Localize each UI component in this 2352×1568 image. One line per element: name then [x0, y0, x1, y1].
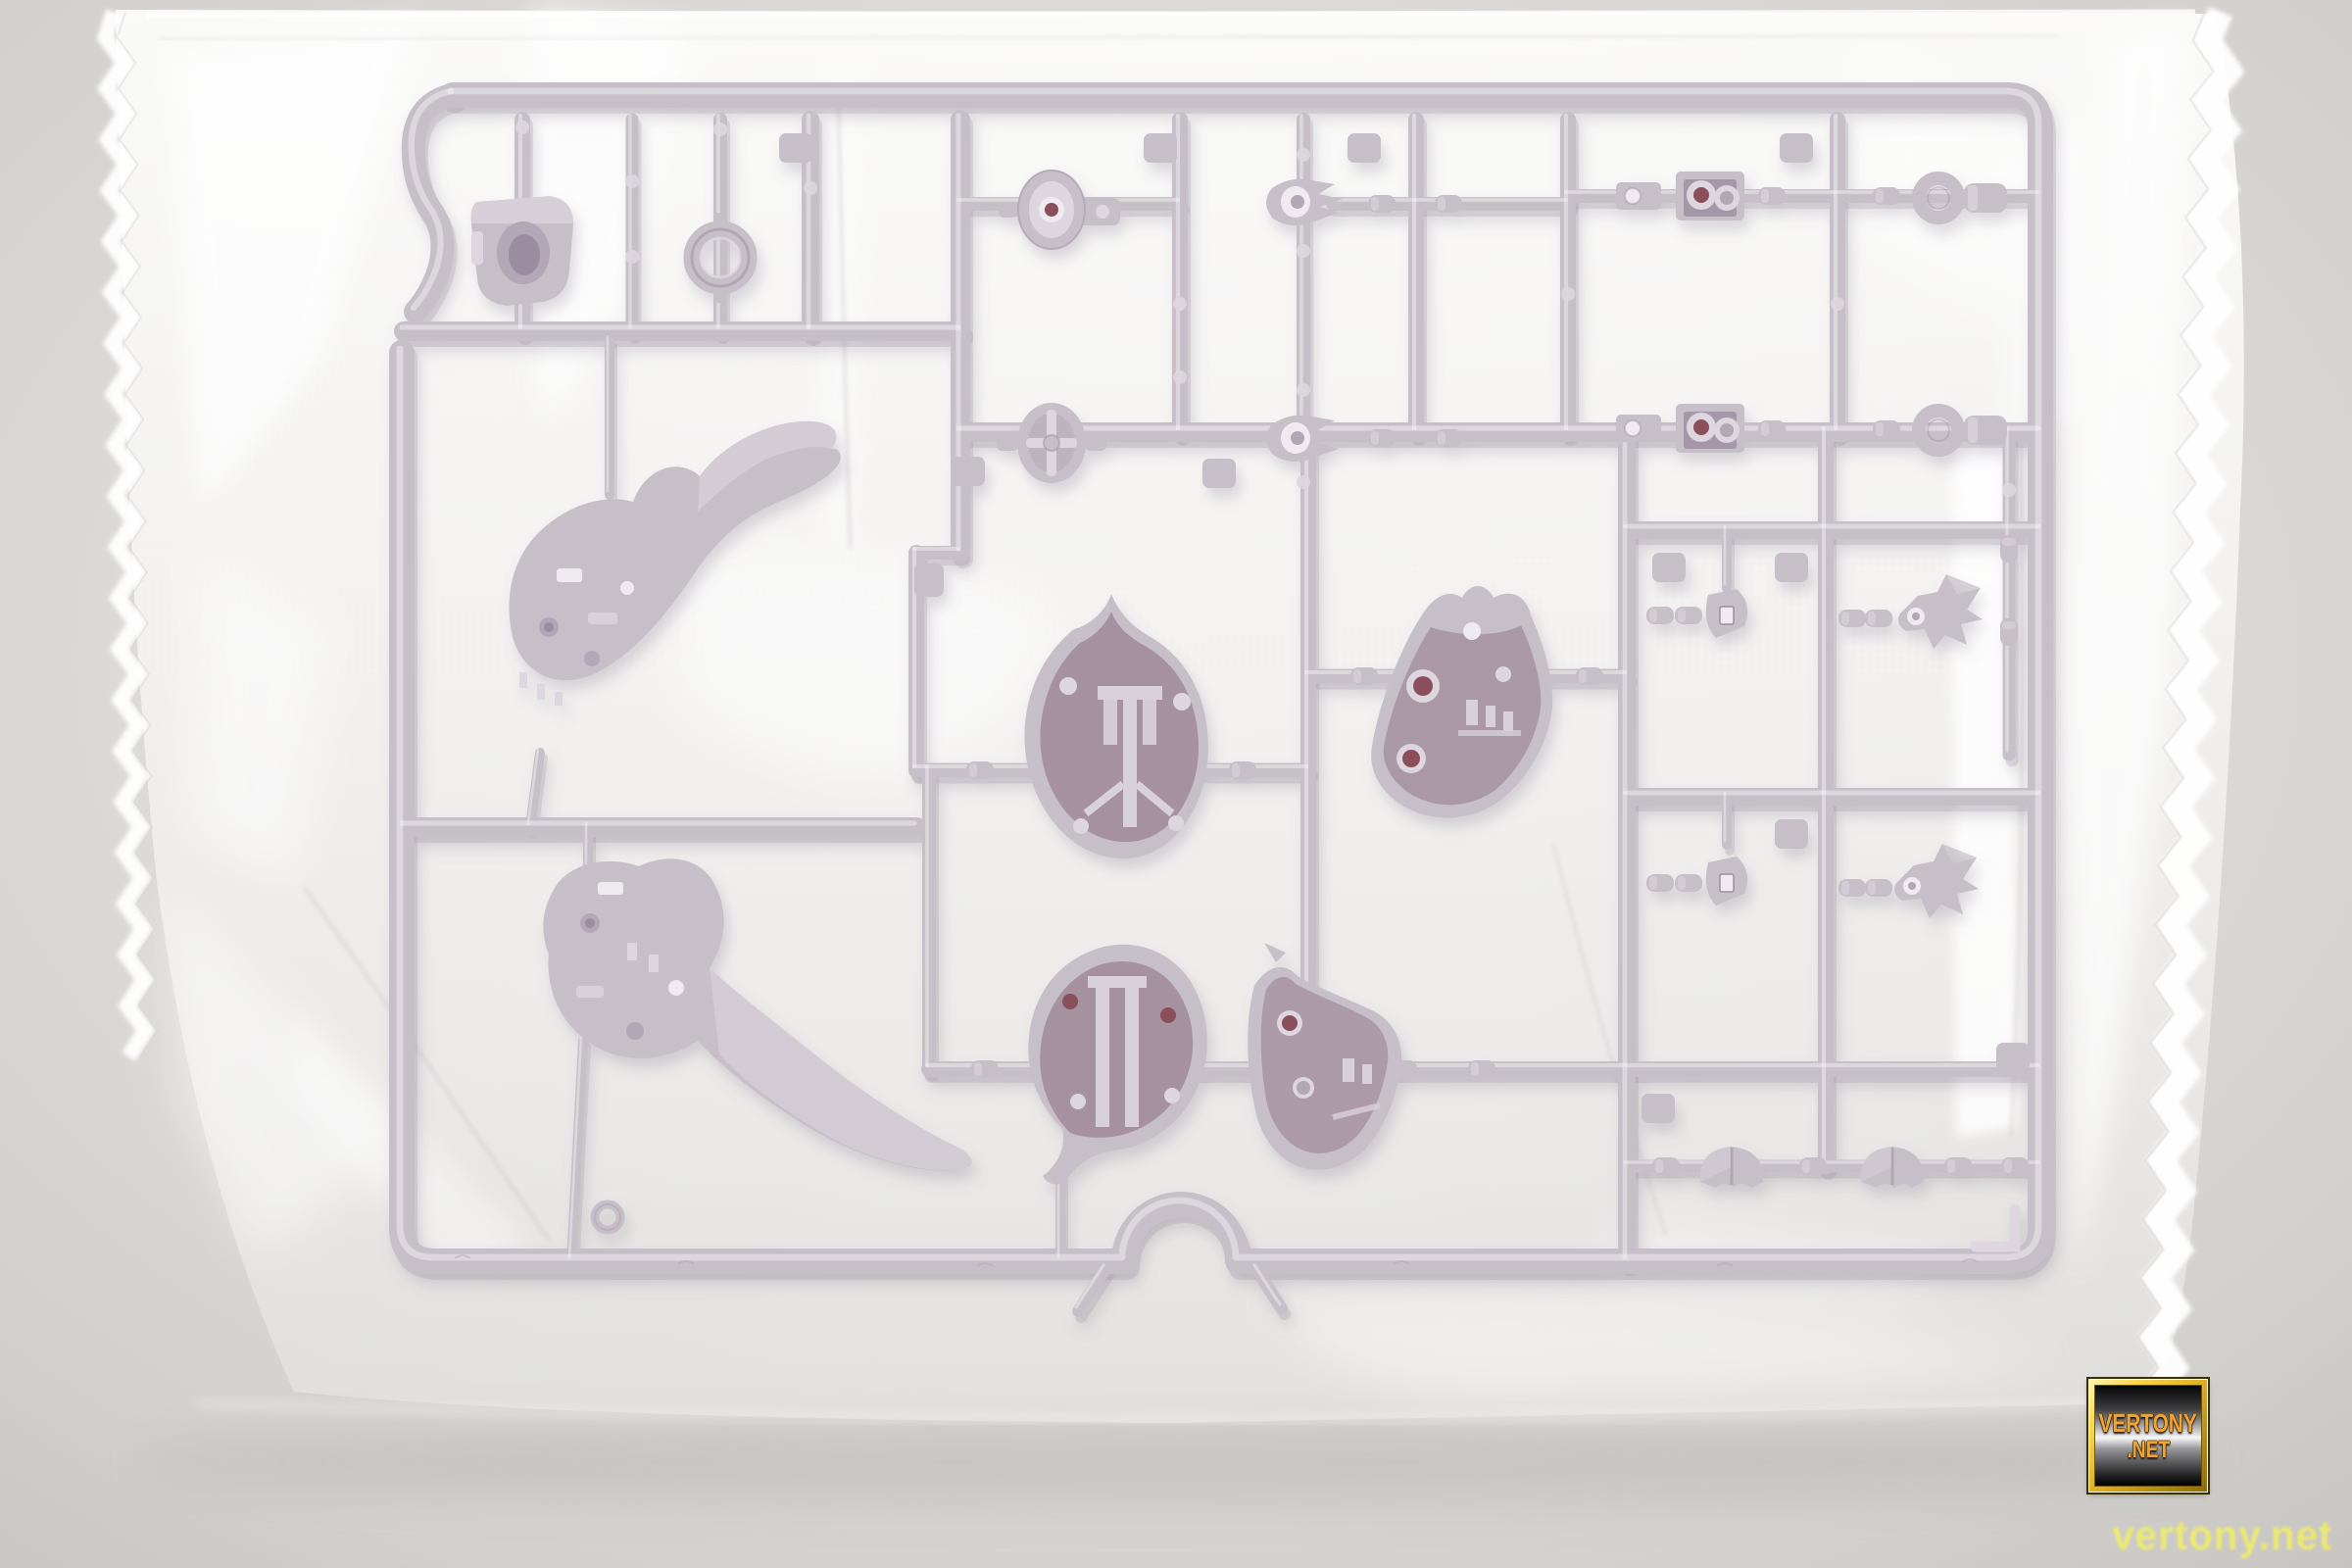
sprue-gate-nub — [1173, 370, 1187, 384]
sprue-gate-connector — [1758, 420, 1786, 438]
sprue-gate-connector — [1350, 667, 1378, 685]
photo-stage: VERTONY .NET vertony.net — [0, 0, 2352, 1568]
sprue-gate-nub — [1561, 287, 1575, 301]
sprue-gate-nub — [1831, 297, 1844, 311]
sprue-gate-connector — [1838, 879, 1866, 897]
sprue-gate-connector — [966, 761, 994, 779]
watermark-badge-line1: VERTONY — [2099, 1410, 2197, 1436]
sprue-tab-stub — [779, 133, 812, 163]
collar-cuff-part — [471, 196, 573, 306]
sprue-gate-connector — [1865, 879, 1892, 897]
sprue-gate-nub — [1173, 297, 1187, 311]
sprue-gate-connector — [1799, 1157, 1827, 1175]
sprue-gate-nub — [1297, 475, 1310, 489]
photograph — [0, 0, 2352, 1568]
sprue-gate-connector — [1865, 610, 1892, 627]
sprue-gate-connector — [1368, 429, 1396, 447]
sprue-tab-stub — [914, 563, 944, 597]
sprue-gate-connector — [1646, 874, 1674, 892]
flat-tab-part-1 — [1616, 182, 1661, 210]
sprue-tab-stub — [1144, 133, 1177, 163]
sprue-gate-connector — [1468, 1060, 1495, 1078]
sprue-gate-nub — [625, 174, 639, 188]
sprue-tab-stub — [1780, 133, 1813, 163]
sprue-gate-nub — [625, 250, 639, 264]
sprue-gate-connector — [1944, 1157, 1972, 1175]
sprue-tab-stub — [1652, 553, 1686, 582]
sprue-gate-connector — [1576, 667, 1603, 685]
sprue-gate-connector — [1435, 195, 1462, 213]
sprue-gate-nub — [1297, 244, 1310, 258]
sprue-tab-stub — [952, 457, 985, 486]
double-barrel-block-1 — [1676, 171, 1744, 220]
watermark-badge-plate: VERTONY .NET — [2094, 1385, 2202, 1487]
sprue-gate-connector — [2000, 535, 2018, 563]
double-barrel-block-2 — [1676, 404, 1744, 453]
sprue-gate-connector — [1652, 1157, 1680, 1175]
sprue-tab-stub — [1775, 553, 1808, 582]
sprue-tab-stub — [1996, 1043, 2030, 1072]
sprue-gate-connector — [1646, 607, 1674, 624]
watermark-badge: VERTONY .NET — [2088, 1379, 2208, 1493]
sprue-gate-connector — [1873, 187, 1900, 205]
sprue-gate-nub — [713, 122, 727, 136]
watermark-badge-line2: .NET — [2127, 1439, 2170, 1462]
sprue-gate-nub — [804, 181, 817, 195]
sprue-gate-connector — [1368, 195, 1396, 213]
sprue-gate-nub — [515, 121, 529, 134]
sprue-gate-connector — [1873, 420, 1900, 438]
bag-shadow — [137, 1419, 2215, 1505]
sprue-gate-nub — [2002, 483, 2016, 497]
sprue-gate-connector — [2001, 1157, 2029, 1175]
sprue-gate-connector — [1758, 187, 1786, 205]
sprue-gate-connector — [971, 1060, 999, 1078]
sprue-tab-stub — [1641, 1094, 1675, 1123]
sprue-tab-stub — [1775, 819, 1808, 849]
flat-tab-part-2 — [1616, 415, 1661, 442]
sprue-gate-connector — [1229, 761, 1256, 779]
sprue-gate-connector — [1435, 429, 1462, 447]
sprue-tab-stub — [1202, 459, 1236, 488]
sprue-tab-stub — [1347, 133, 1381, 163]
sprue-gate-connector — [2000, 618, 2018, 646]
sprue-gate-connector — [1675, 874, 1702, 892]
sprue-gate-connector — [1675, 607, 1702, 624]
watermark-corner-text: vertony.net — [2113, 1512, 2333, 1560]
sprue-gate-connector — [1838, 610, 1866, 627]
sprue-gate-nub — [1297, 383, 1310, 397]
sprue-gate-nub — [1297, 148, 1310, 162]
